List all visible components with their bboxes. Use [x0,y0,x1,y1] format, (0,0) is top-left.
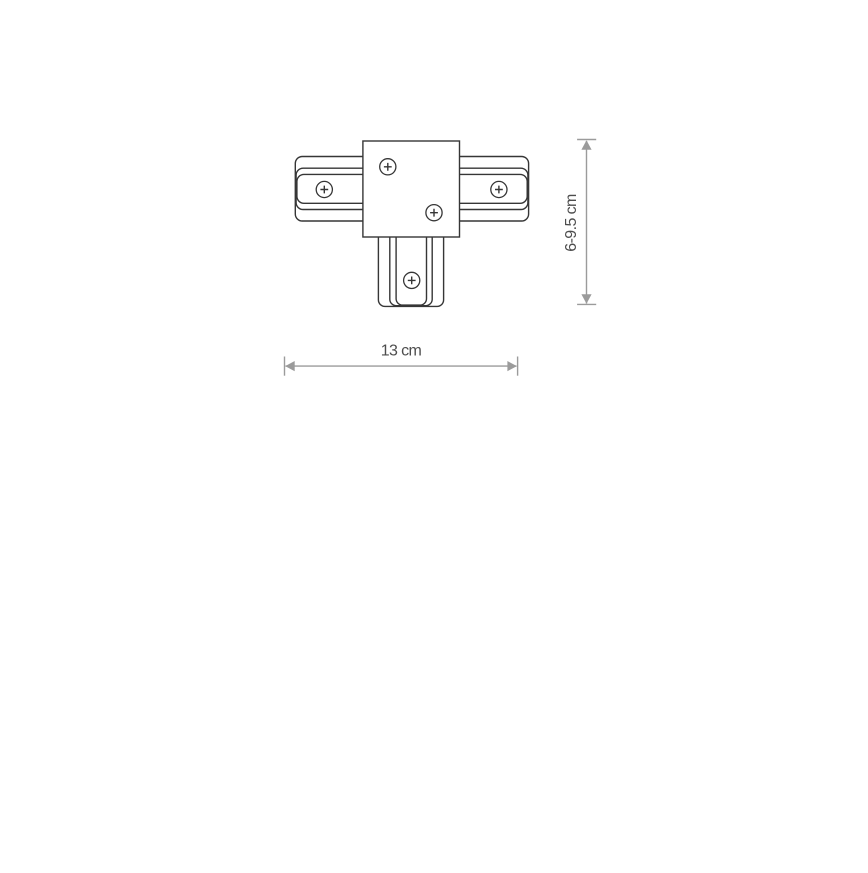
svg-text:13 cm: 13 cm [381,343,422,360]
svg-text:6-9.5 cm: 6-9.5 cm [563,194,580,252]
